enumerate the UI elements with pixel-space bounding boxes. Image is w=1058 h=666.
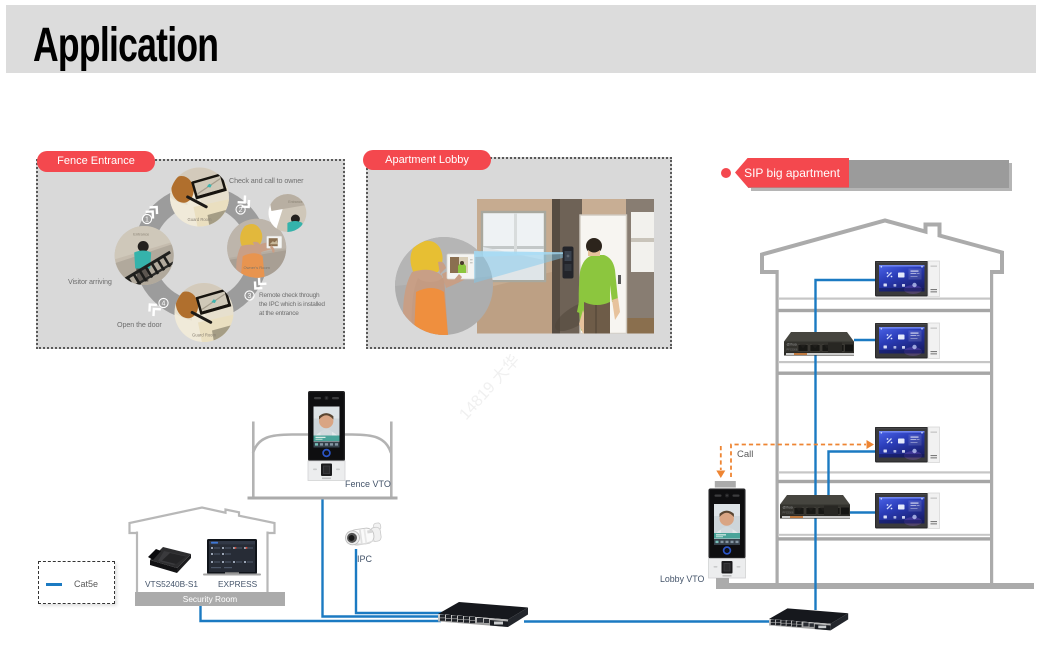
- svg-text:2: 2: [239, 207, 243, 214]
- svg-text:Guard Room: Guard Room: [192, 333, 216, 338]
- svg-text:1: 1: [145, 217, 149, 224]
- svg-text:Entrance: Entrance: [133, 232, 150, 237]
- svg-text:Guard Room: Guard Room: [188, 217, 212, 222]
- svg-text:Entrance: Entrance: [288, 200, 302, 204]
- svg-text:4: 4: [162, 301, 166, 308]
- svg-text:Owner's Room: Owner's Room: [244, 265, 271, 270]
- svg-text:3: 3: [248, 293, 252, 300]
